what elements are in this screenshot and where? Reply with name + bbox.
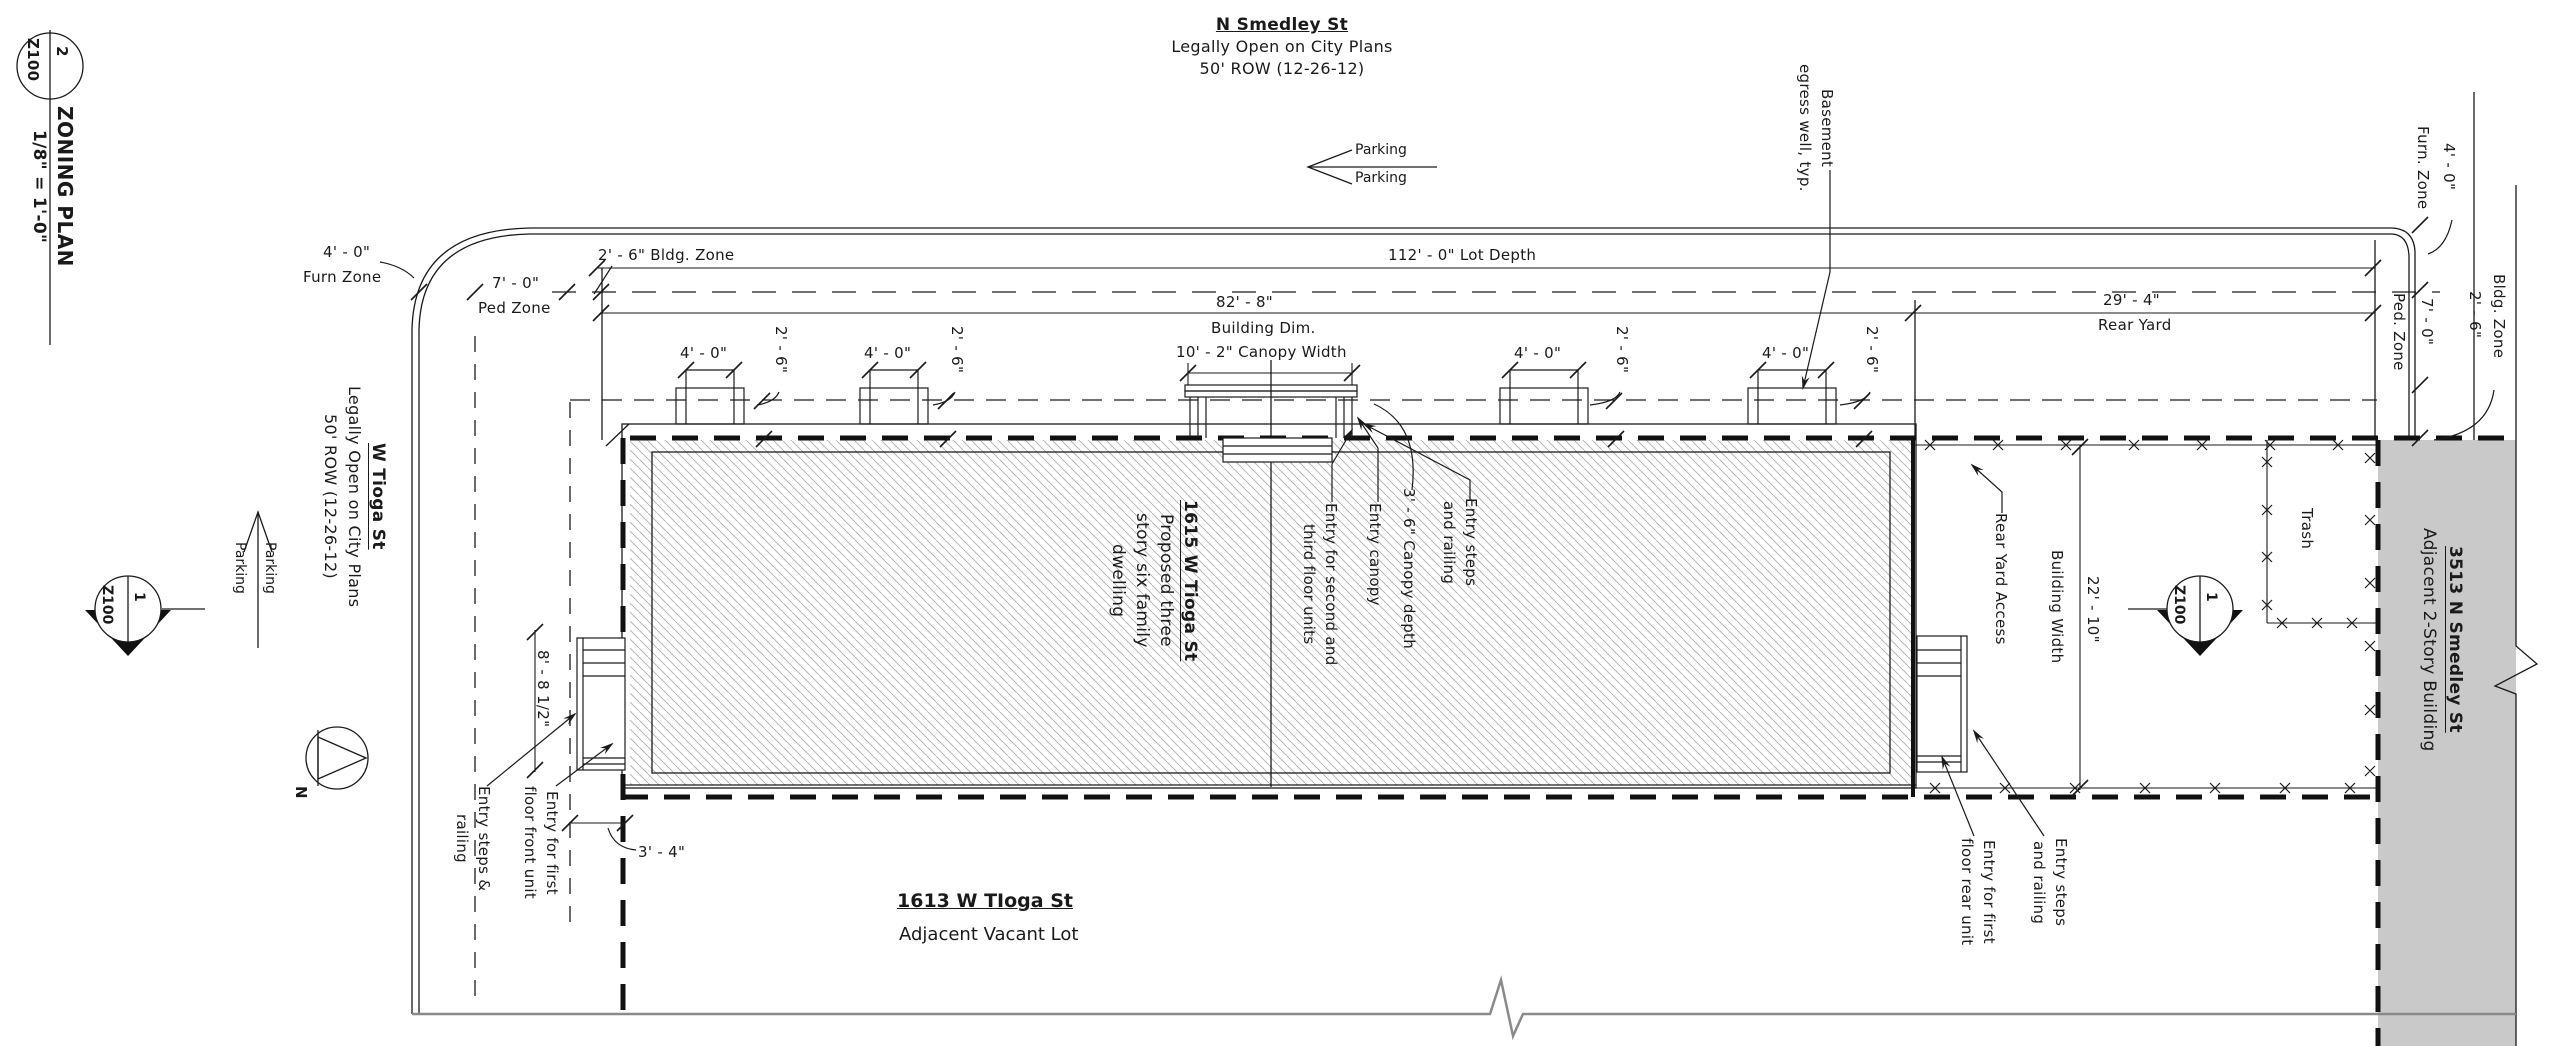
furn-zone-dim-left: 4' - 0"	[323, 243, 370, 261]
basement-egress-note: Basement egress well, typ.	[1794, 64, 1838, 192]
furn-zone-dim-right: 4' - 0"	[2440, 143, 2458, 190]
detail-number: 2	[53, 46, 71, 57]
bay3-width-dim: 4' - 0"	[1514, 344, 1561, 362]
entry-steps-mid-line2: and railing	[1438, 498, 1460, 586]
entry-rear-note: Entry for first floor rear unit	[1956, 838, 2000, 946]
bldg-zone-label-right: Bldg. Zone	[2490, 274, 2508, 358]
smedley-desc: Adjacent 2-Story Building	[2416, 528, 2442, 752]
entry-front-line1: Entry for first	[541, 786, 563, 899]
trash-label: Trash	[2298, 508, 2316, 549]
north-compass-icon	[306, 727, 368, 789]
entry-rear-line1: Entry for first	[1978, 838, 2000, 946]
bay4-width-dim: 4' - 0"	[1762, 344, 1809, 362]
section-left-number: 1	[131, 592, 147, 602]
building-desc-1: Proposed three	[1154, 500, 1178, 661]
building-address: 1615 W Tioga St	[1178, 500, 1202, 661]
entry-steps-mid-line1: Entry steps	[1460, 498, 1482, 586]
front-entry-steps	[577, 638, 625, 770]
building-label: 1615 W Tioga St Proposed three story six…	[1106, 500, 1202, 661]
rear-yard-fences	[1915, 440, 2377, 788]
bay4-offset-dim: 2' - 6"	[1863, 326, 1881, 373]
section-rear-number: 1	[2203, 592, 2219, 602]
entry-steps-right-note: Entry steps and railing	[2028, 838, 2072, 926]
entry-front-line2: floor front unit	[519, 786, 541, 899]
zoning-plan-drawing: 2 Z100 ZONING PLAN 1/8" = 1'-0" N Smedle…	[0, 0, 2560, 1046]
smedley-building-label: 3513 N Smedley St Adjacent 2-Story Build…	[2416, 528, 2468, 752]
bldg-zone-label-left: 2' - 6" Bldg. Zone	[598, 246, 734, 264]
north-street-header: N Smedley St Legally Open on City Plans …	[1132, 14, 1432, 80]
north-street-status: Legally Open on City Plans	[1132, 36, 1432, 58]
rear-entry-steps	[1917, 636, 1967, 772]
ped-zone-dim-right: 7' - 0"	[2418, 298, 2436, 345]
entry-canopy-note: Entry canopy	[1366, 503, 1384, 606]
west-parking-lower: Parking	[232, 542, 248, 594]
furn-zone-label-left: Furn Zone	[303, 268, 381, 286]
entry-steps-mid-note: Entry steps and railing	[1438, 498, 1482, 586]
basement-egress-line1: Basement	[1816, 64, 1838, 192]
rear-building-width-label: Building Width	[2048, 550, 2066, 663]
building-dim-value: 82' - 8"	[1216, 293, 1273, 311]
front-entry-width-dim: 8' - 8 1/2"	[534, 650, 552, 727]
lot-depth-dim: 112' - 0" Lot Depth	[1388, 246, 1536, 264]
entry-upper-line2: third floor units	[1298, 503, 1320, 666]
section-left-sheet: Z100	[99, 585, 115, 624]
ped-zone-dim-left: 7' - 0"	[492, 274, 539, 292]
furn-zone-label-right: Furn. Zone	[2414, 126, 2432, 209]
entry-steps-left-line2: railing	[451, 786, 473, 891]
ground-line	[412, 980, 2516, 1036]
entry-upper-line1: Entry for second and	[1320, 503, 1342, 666]
detail-sheet-number: Z100	[24, 38, 42, 81]
west-street-name: W Tioga St	[366, 386, 390, 607]
canopy-depth-dim: 3' - 6" Canopy depth	[1400, 488, 1418, 649]
ped-zone-label-right: Ped. Zone	[2390, 293, 2408, 371]
bay1-width-dim: 4' - 0"	[680, 344, 727, 362]
bay1-offset-dim: 2' - 6"	[772, 326, 790, 373]
canopy-width-dim: 10' - 2" Canopy Width	[1176, 343, 1347, 361]
bay2-width-dim: 4' - 0"	[864, 344, 911, 362]
north-parking-lower: Parking	[1355, 170, 1407, 186]
north-street-name: N Smedley St	[1132, 14, 1432, 36]
entry-steps-right-line2: and railing	[2028, 838, 2050, 926]
entry-upper-note: Entry for second and third floor units	[1298, 503, 1342, 666]
rear-building-width-value: 22' - 10"	[2084, 576, 2102, 643]
proposed-building-footprint	[606, 360, 1916, 788]
entry-steps-right-line1: Entry steps	[2050, 838, 2072, 926]
rear-yard-dim: 29' - 4"	[2103, 291, 2160, 309]
entry-steps-left-note: Entry steps & railing	[451, 786, 495, 891]
section-rear-sheet: Z100	[2171, 585, 2187, 624]
north-compass-label: N	[292, 786, 310, 799]
north-street-row: 50' ROW (12-26-12)	[1132, 58, 1432, 80]
basement-egress-line2: egress well, typ.	[1794, 64, 1816, 192]
entry-rear-line2: floor rear unit	[1956, 838, 1978, 946]
smedley-address: 3513 N Smedley St	[2442, 528, 2468, 752]
bay2-offset-dim: 2' - 6"	[948, 326, 966, 373]
drawing-title-block: ZONING PLAN 1/8" = 1'-0"	[26, 106, 78, 267]
building-dim-label: Building Dim.	[1211, 319, 1316, 337]
building-desc-2: story six family	[1130, 500, 1154, 661]
west-street-row: 50' ROW (12-26-12)	[318, 386, 342, 607]
north-parking-upper: Parking	[1355, 142, 1407, 158]
entry-front-note: Entry for first floor front unit	[519, 786, 563, 899]
west-street-status: Legally Open on City Plans	[342, 386, 366, 607]
bay3-offset-dim: 2' - 6"	[1613, 326, 1631, 373]
drawing-title: ZONING PLAN	[52, 106, 78, 267]
drawing-scale: 1/8" = 1'-0"	[26, 106, 52, 267]
bldg-zone-dim-right: 2' - 6"	[2466, 291, 2484, 338]
rear-yard-label: Rear Yard	[2098, 316, 2172, 334]
west-street-header: W Tioga St Legally Open on City Plans 50…	[318, 386, 390, 607]
ped-zone-label-left: Ped Zone	[478, 299, 551, 317]
front-entry-offset-dim: 3' - 4"	[638, 843, 685, 861]
vacant-lot-desc: Adjacent Vacant Lot	[899, 924, 1078, 945]
west-parking-upper: Parking	[262, 542, 278, 594]
vacant-lot-address: 1613 W TIoga St	[897, 890, 1073, 912]
rear-yard-access-note: Rear Yard Access	[1992, 513, 2010, 645]
entry-steps-left-line1: Entry steps &	[473, 786, 495, 891]
building-desc-3: dwelling	[1106, 500, 1130, 661]
